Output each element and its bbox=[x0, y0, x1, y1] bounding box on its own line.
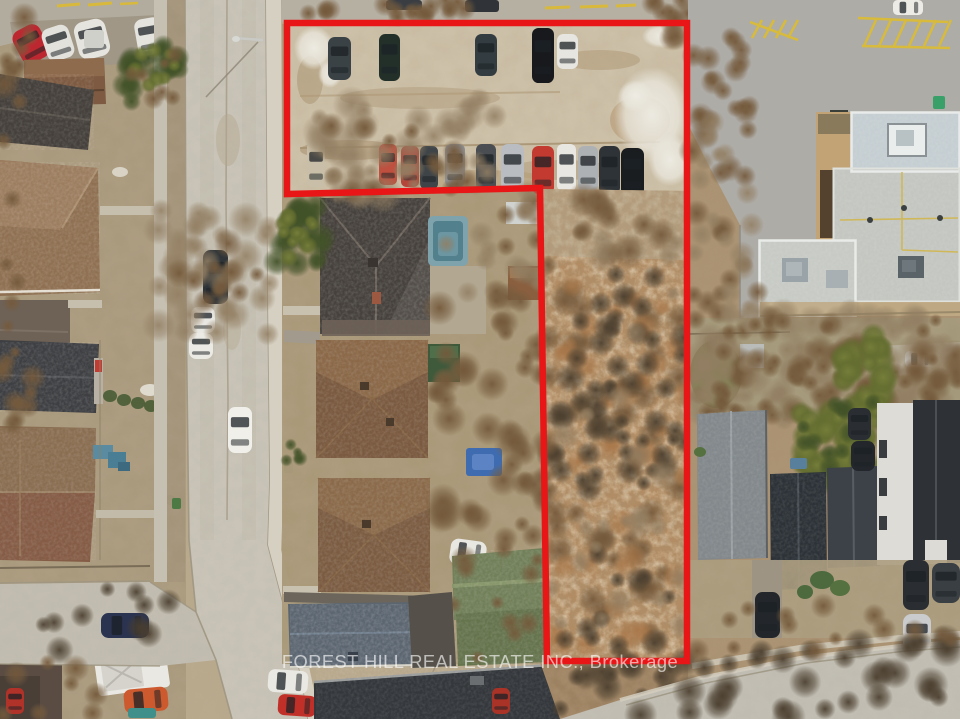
svg-text:FOREST HILL REAL ESTATE INC.,: FOREST HILL REAL ESTATE INC., Brokerage bbox=[282, 651, 678, 672]
